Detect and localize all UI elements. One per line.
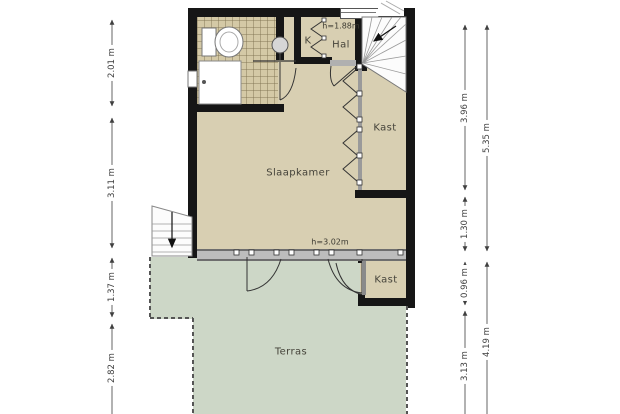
- room-label-k: K: [305, 36, 312, 47]
- room-label-terras: Terras: [275, 347, 307, 358]
- floor-bathroom: [197, 17, 278, 105]
- room-label-slaapkamer: Slaapkamer: [266, 168, 329, 179]
- window-top: [340, 8, 379, 19]
- room-label-kast-upper: Kast: [373, 123, 396, 134]
- wall-terrace-kast-bottom: [358, 298, 415, 306]
- dim-label-right-inner-2: 0.96 m: [460, 265, 470, 301]
- staircase-exterior: [152, 206, 192, 256]
- dim-label-right-inner-1: 1.30 m: [460, 206, 470, 242]
- room-label-kast-terras: Kast: [374, 275, 397, 286]
- wall-left: [188, 8, 197, 258]
- wall-k-hal-bottom: [294, 57, 332, 64]
- glass-facade: [197, 249, 406, 261]
- wall-bathroom-bottom: [188, 104, 284, 112]
- stair-break-notch: [378, 0, 404, 16]
- floor-plan-canvas: Slaapkamer Hal K Kast Kast Terras h=1.88…: [0, 0, 620, 414]
- wall-kast-bottom: [355, 190, 406, 198]
- hal-door-threshold: [330, 60, 356, 66]
- height-label-hal: h=1.88m: [322, 22, 359, 31]
- dim-label-left-1: 3.11 m: [107, 165, 117, 201]
- wall-bathroom-right: [276, 17, 284, 60]
- height-label-slaapkamer: h=3.02m: [311, 238, 348, 247]
- floor-terrace-lower: [193, 318, 406, 414]
- dim-label-right-outer-0: 5.35 m: [482, 120, 492, 156]
- wall-right: [406, 8, 415, 308]
- dim-label-left-0: 2.01 m: [107, 45, 117, 81]
- dim-label-right-inner-0: 3.96 m: [460, 90, 470, 126]
- dim-label-right-inner-3: 3.13 m: [460, 348, 470, 384]
- wall-stair-corner: [355, 57, 367, 71]
- dim-label-left-3: 2.82 m: [107, 350, 117, 386]
- dim-label-left-2: 1.37 m: [107, 269, 117, 305]
- dim-label-right-outer-1: 4.19 m: [482, 324, 492, 360]
- room-label-hal: Hal: [332, 40, 350, 51]
